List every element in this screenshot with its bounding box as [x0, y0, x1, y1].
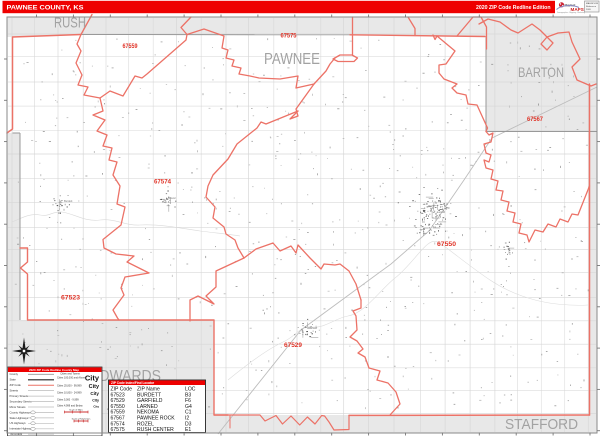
svg-text:City: City [90, 391, 99, 396]
svg-text:Cities 4,999 and Below: Cities 4,999 and Below [57, 405, 83, 408]
svg-text:Primary Streets: Primary Streets [10, 394, 29, 398]
svg-text:Cities 10,000 - 24,999: Cities 10,000 - 24,999 [57, 392, 82, 395]
svg-text:Cities 100,000 and Above: Cities 100,000 and Above [57, 376, 86, 379]
svg-text:2020: 2020 [586, 9, 592, 11]
svg-text:Scale of Miles: Scale of Miles [69, 409, 84, 411]
svg-text:2020 ZIP Code Redline Edition: 2020 ZIP Code Redline Edition [476, 5, 551, 11]
svg-text:State: State [10, 378, 17, 382]
svg-text:Demographics - Mapping - Marke: Demographics - Mapping - Marketing [557, 11, 585, 14]
svg-text:County Highways: County Highways [10, 410, 32, 414]
svg-text:67559: 67559 [123, 43, 138, 50]
svg-text:Reference: Reference [586, 5, 597, 8]
svg-text:67550: 67550 [437, 241, 456, 248]
svg-text:US Highways: US Highways [10, 421, 27, 425]
svg-text:67529: 67529 [284, 342, 302, 349]
svg-text:STAFFORD: STAFFORD [505, 416, 578, 433]
svg-text:City: City [93, 404, 99, 408]
svg-text:ZIP Code: ZIP Code [10, 383, 22, 387]
svg-text:Cities 5,000 - 9,999: Cities 5,000 - 9,999 [57, 398, 79, 401]
svg-text:Cities and Towns: Cities and Towns [60, 372, 80, 376]
svg-text:Rozel: Rozel [169, 196, 176, 200]
svg-text:Minor Streets: Minor Streets [10, 405, 27, 409]
svg-text:67567: 67567 [527, 116, 543, 123]
svg-text:67523: 67523 [61, 295, 80, 302]
svg-text:67575: 67575 [281, 32, 297, 39]
svg-text:2020 ZIP Code Redline County M: 2020 ZIP Code Redline County Map [29, 368, 79, 372]
svg-text:Garfield: Garfield [308, 326, 318, 330]
svg-text:State Highways: State Highways [10, 416, 29, 420]
svg-text:Scale of Kilometers: Scale of Kilometers [72, 417, 92, 420]
svg-text:Larned: Larned [437, 210, 446, 214]
svg-text:MAILROOM: MAILROOM [586, 2, 598, 5]
svg-text:Streets: Streets [10, 389, 19, 393]
svg-text:PAWNEE: PAWNEE [264, 51, 320, 68]
svg-text:Burdett: Burdett [64, 199, 73, 203]
svg-text:ZIP Code Index/Find Locator: ZIP Code Index/Find Locator [111, 381, 155, 385]
svg-text:County: County [10, 372, 19, 376]
svg-text:BARTON: BARTON [518, 64, 564, 80]
svg-text:City: City [89, 384, 100, 390]
svg-text:E1: E1 [185, 427, 191, 433]
svg-text:City: City [85, 374, 100, 383]
svg-text:67574: 67574 [154, 179, 171, 186]
svg-text:RUSH CENTER: RUSH CENTER [137, 427, 174, 433]
svg-text:67575: 67575 [111, 427, 125, 433]
svg-text:PAWNEE COUNTY, KS: PAWNEE COUNTY, KS [7, 5, 84, 11]
svg-text:City: City [92, 398, 99, 402]
svg-text:Cities 25,000 - 99,999: Cities 25,000 - 99,999 [57, 385, 82, 388]
